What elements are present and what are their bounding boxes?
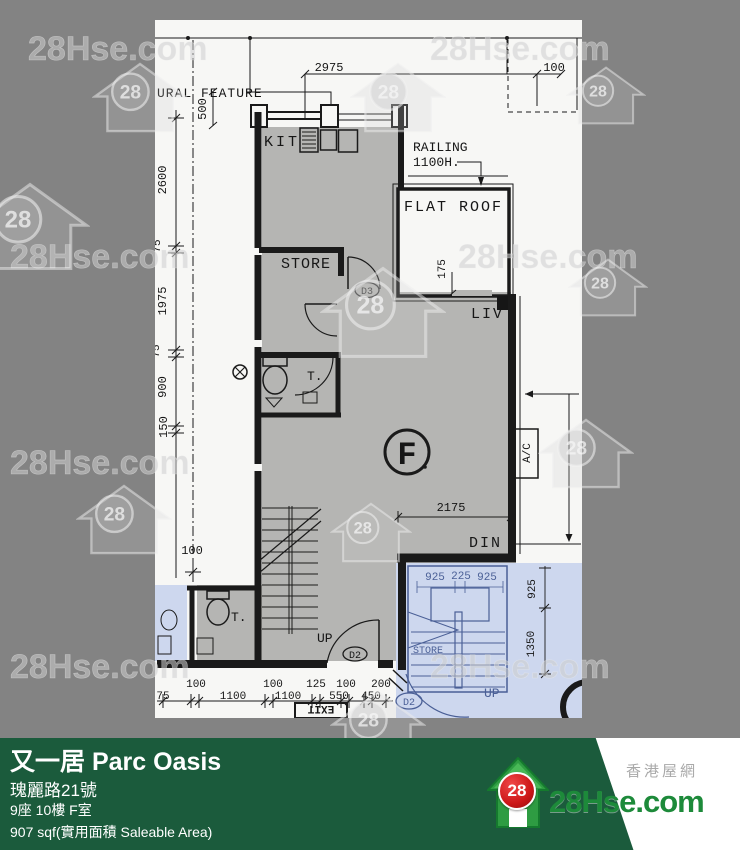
- dim-stair-925b: 925: [477, 572, 497, 584]
- label-exit: EXIT: [307, 702, 334, 714]
- dim-b2-1100a: 1100: [220, 691, 246, 703]
- unit-letter: F: [397, 437, 416, 474]
- floor-fills: [155, 127, 582, 718]
- dim-2975: 2975: [315, 61, 344, 75]
- info-bar: 又一居 Parc Oasis 瑰麗路21號 9座 10樓 F室 907 sqf(…: [0, 738, 740, 850]
- dim-100-top: 100: [543, 61, 565, 75]
- dim-500: 500: [196, 98, 210, 120]
- property-area: 907 sqf(實用面積 Saleable Area): [10, 822, 212, 842]
- svg-text:28: 28: [589, 83, 607, 100]
- railing-pointer-icon: [478, 177, 484, 186]
- watermark-house-icon: 28: [0, 182, 90, 271]
- dim-b2-450: 450: [361, 691, 381, 703]
- svg-text:28: 28: [120, 82, 142, 103]
- svg-text:28: 28: [5, 207, 32, 234]
- dim-b2-550: 550: [329, 691, 349, 703]
- dim-stair-925a: 925: [425, 572, 445, 584]
- logo-28-badge: 28: [498, 772, 536, 810]
- dim-75-a: 75: [155, 239, 164, 252]
- label-up-unit: UP: [317, 631, 333, 646]
- logo-tagline: 香港屋網: [626, 760, 698, 781]
- label-flat-roof: FLAT ROOF: [404, 199, 503, 216]
- dim-stair-225: 225: [451, 571, 471, 583]
- dim-b1-125: 125: [306, 679, 326, 691]
- property-unit: 9座 10樓 F室: [10, 800, 92, 820]
- dim-100-left: 100: [181, 544, 203, 558]
- dim-2175: 2175: [437, 501, 466, 515]
- arrow-down-icon: [566, 534, 573, 542]
- label-railing: RAILING: [413, 140, 468, 155]
- floor-plan-paper: 2975 100 500 URAL FEATURE 2600 75 1975 7…: [155, 20, 582, 718]
- dim-b1-100b: 100: [263, 679, 283, 691]
- floor-plan-drawing: 2975 100 500 URAL FEATURE 2600 75 1975 7…: [155, 20, 582, 718]
- label-dining: DIN: [469, 535, 502, 552]
- label-up-common: UP: [484, 686, 500, 701]
- dim-b1-200: 200: [371, 679, 391, 691]
- label-railing-height: 1100H.: [413, 155, 460, 170]
- label-ac: A/C: [522, 443, 534, 463]
- dim-150: 150: [157, 416, 171, 438]
- dimensions-top: 2975 100 500 URAL FEATURE: [157, 61, 565, 129]
- dim-2600: 2600: [156, 166, 170, 195]
- door-label-d3: D3: [361, 287, 373, 298]
- logo-site-name: 28Hse.com: [549, 784, 704, 820]
- dim-stair-col-1350: 1350: [526, 631, 538, 657]
- screenshot-stage: 2975 100 500 URAL FEATURE 2600 75 1975 7…: [0, 0, 740, 850]
- label-architectural-feature: URAL FEATURE: [157, 86, 263, 101]
- dim-175: 175: [437, 259, 449, 279]
- dimensions-left: 2600 75 1975 75 900 150 100: [155, 110, 203, 582]
- dim-75-b: 75: [155, 344, 163, 357]
- label-kitchen: KIT: [264, 134, 300, 151]
- label-store-common: STORE: [413, 646, 443, 657]
- dim-1975: 1975: [156, 287, 170, 316]
- door-label-d2-unit: D2: [349, 651, 361, 662]
- dim-b1-100a: 100: [186, 679, 206, 691]
- arrow-left-icon: [525, 391, 533, 398]
- door-label-d2-common: D2: [403, 698, 415, 709]
- label-store: STORE: [281, 256, 331, 273]
- dim-b1-100c: 100: [336, 679, 356, 691]
- label-living: LIV: [471, 306, 504, 323]
- dim-stair-col-925: 925: [527, 579, 539, 599]
- svg-text:28: 28: [591, 275, 609, 292]
- property-address: 瑰麗路21號: [10, 776, 97, 801]
- dim-b2-75: 75: [156, 691, 169, 703]
- dimensions-bottom: 100 100 125 100 200 75 1100 1100 550 450…: [156, 679, 393, 718]
- dim-b2-1100b: 1100: [275, 691, 301, 703]
- svg-text:28: 28: [104, 504, 126, 525]
- label-toilet-upper: T.: [307, 369, 323, 384]
- label-toilet-lower: T.: [231, 610, 247, 625]
- property-title: 又一居 Parc Oasis: [10, 742, 221, 778]
- dim-900: 900: [156, 376, 170, 398]
